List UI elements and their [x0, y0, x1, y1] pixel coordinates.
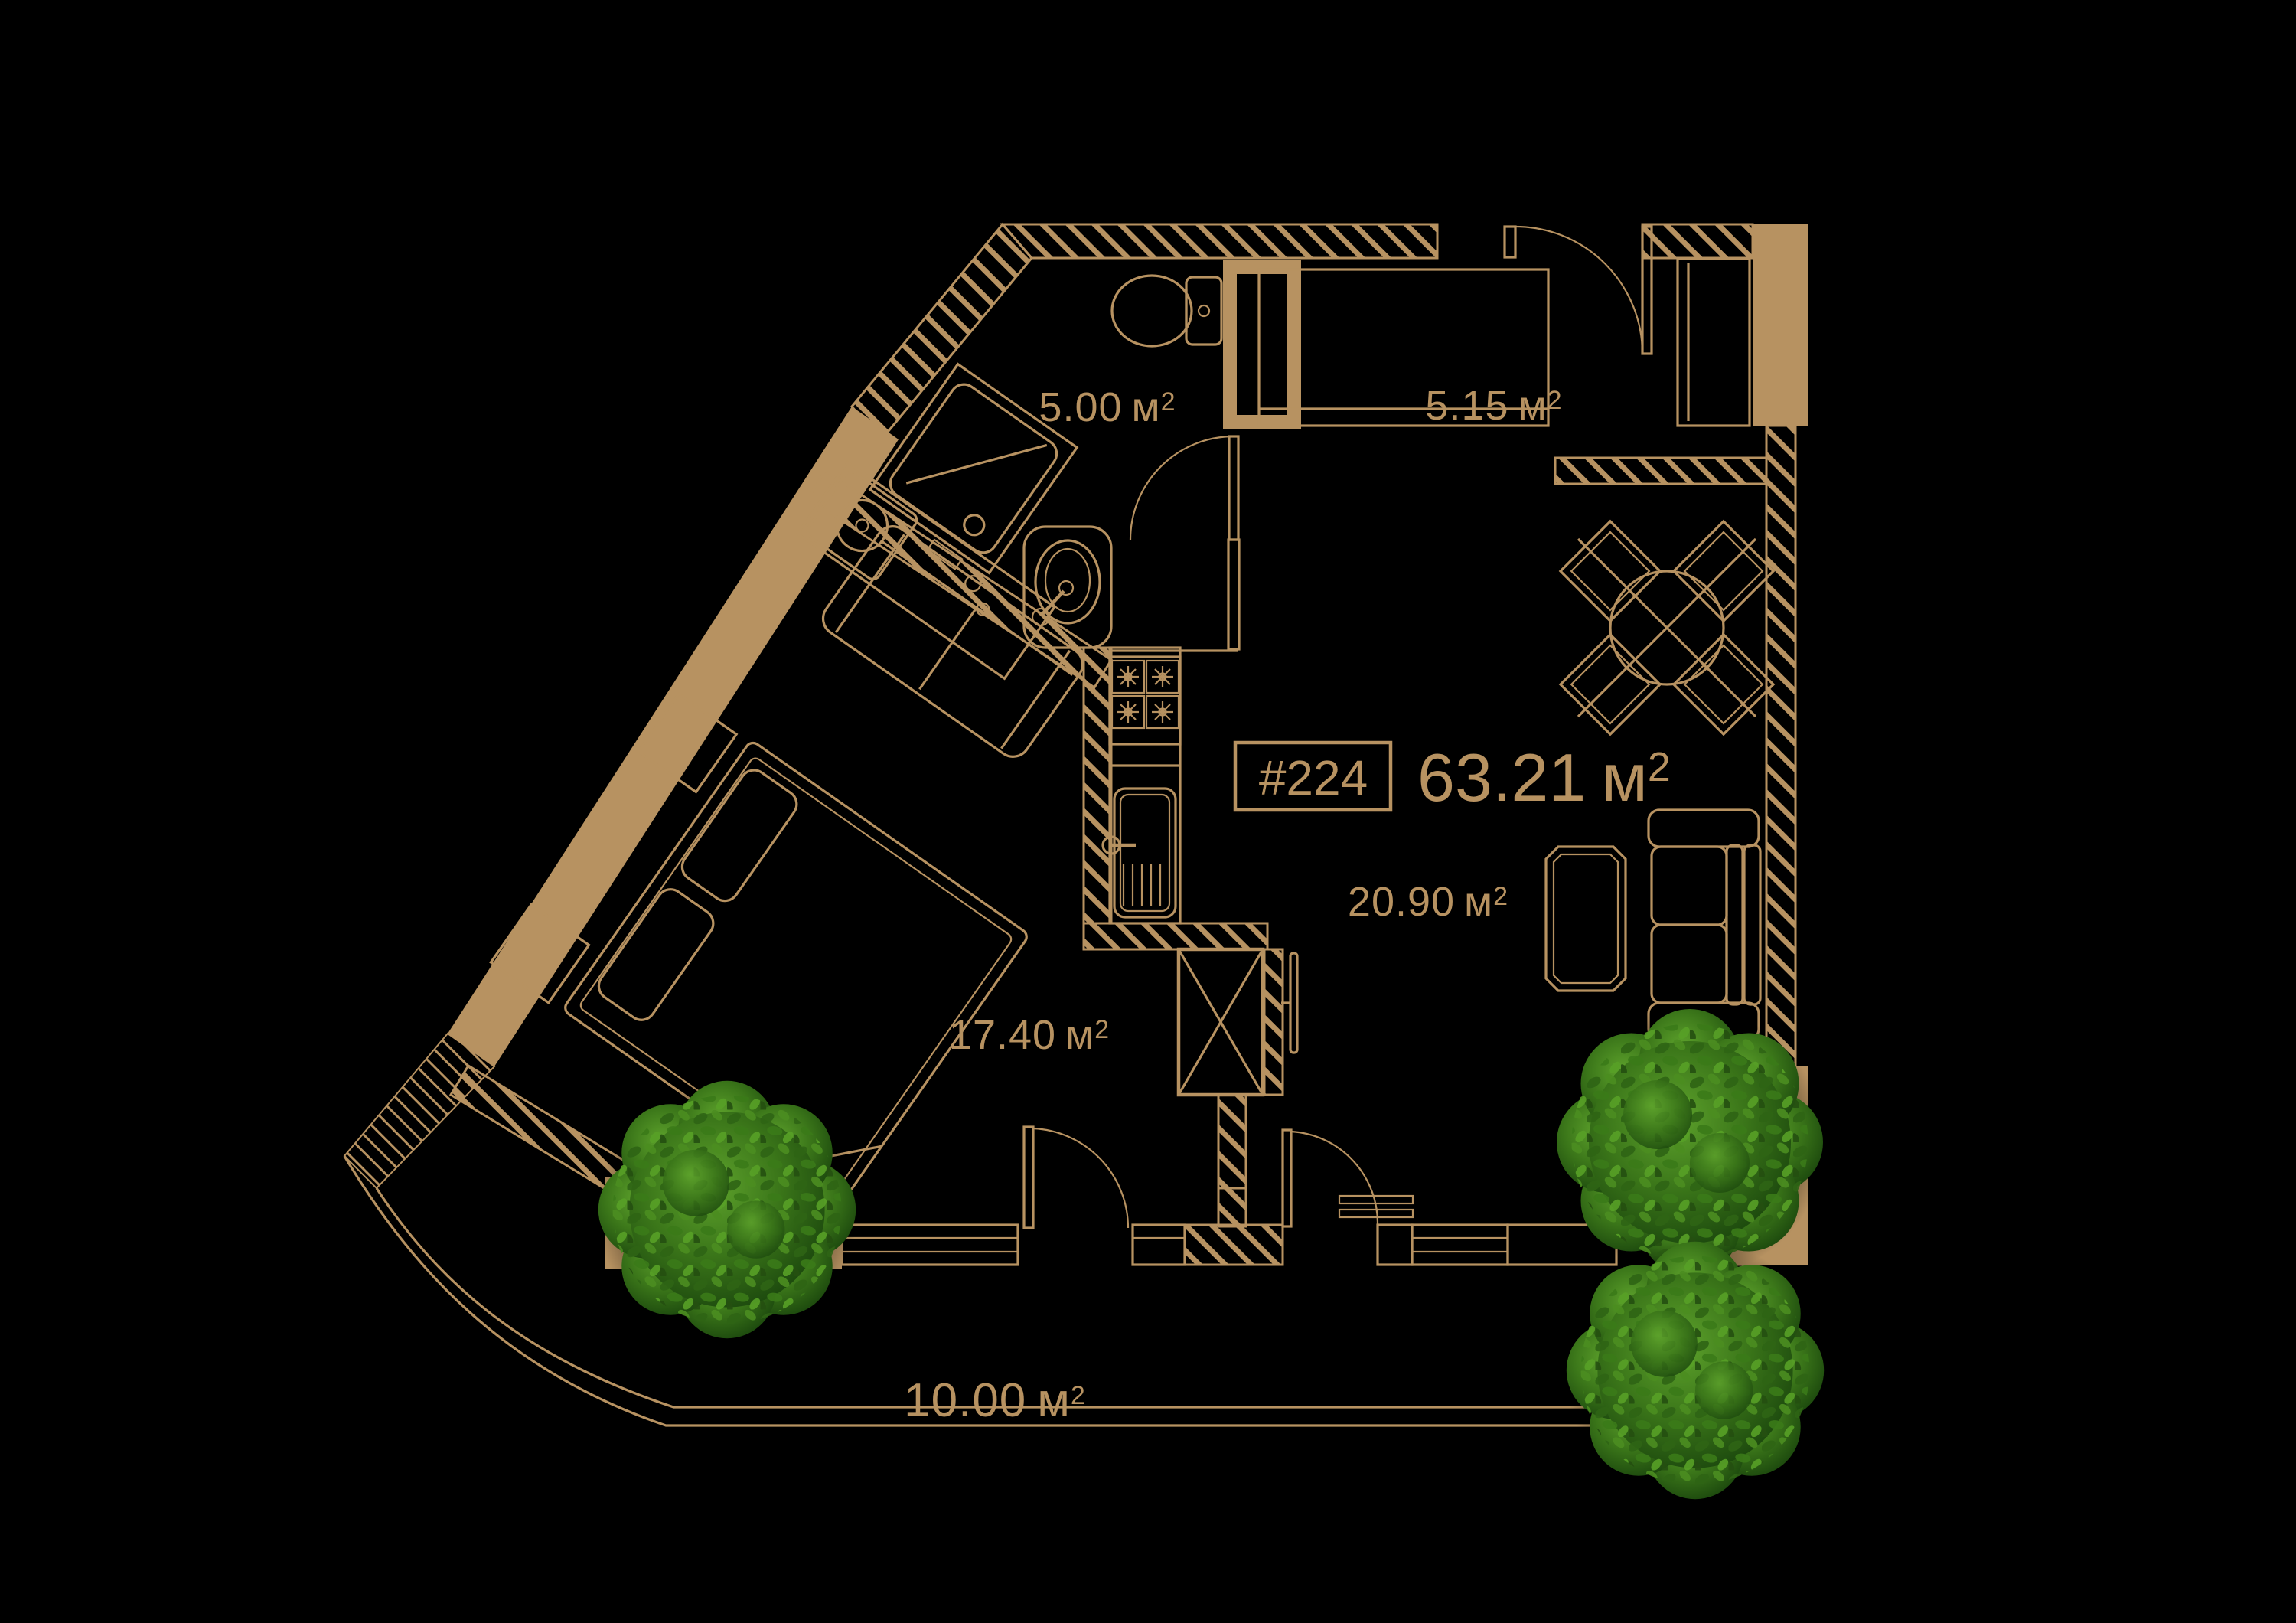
bathroom-area-label: 5.00м2	[1039, 384, 1176, 430]
bedroom-terrace-door-icon	[1024, 1127, 1128, 1228]
parapet-start	[344, 1034, 494, 1188]
dining-set	[1561, 521, 1773, 734]
partition-hallway-living	[1555, 458, 1766, 484]
duct-shaft-icon	[1230, 267, 1294, 422]
tree-icon	[596, 1079, 858, 1341]
wall-bottom	[842, 1188, 1616, 1265]
pillow-icon	[677, 765, 802, 906]
total-area-label: 63.21м2	[1417, 740, 1671, 815]
closet-icon	[1678, 259, 1750, 426]
pillow-icon	[593, 884, 719, 1026]
sofa-icon	[1649, 810, 1760, 1040]
hallway-area-label: 5.15м2	[1425, 383, 1562, 429]
wall-bottom-hatch	[1185, 1225, 1283, 1265]
wall-kitchen-bottom	[1084, 923, 1267, 949]
kitchen-block	[1103, 648, 1180, 923]
wall-below-bathroom-door	[1228, 540, 1239, 649]
floor-plan-svg: #224 63.21м2 5.00м2 5.15м2 20.90м2 17.40…	[0, 0, 2296, 1623]
wall-top	[1003, 224, 1437, 258]
wall-kitchen-left	[1084, 648, 1111, 923]
wall-top-right-segment	[1642, 224, 1753, 258]
wall-stub-wardrobe-right	[1264, 949, 1283, 1095]
wall-right	[1766, 426, 1795, 1066]
floor-plan-page: #224 63.21м2 5.00м2 5.15м2 20.90м2 17.40…	[0, 0, 2296, 1623]
window-bedroom-terrace	[842, 1225, 1018, 1265]
entrance-door-icon	[1505, 227, 1652, 354]
wall-bottom-plain-1	[1378, 1225, 1412, 1265]
wall-stub-small	[1218, 1188, 1246, 1226]
tall-cabinet-icon	[1179, 949, 1263, 1095]
tree-icon	[1554, 1007, 1825, 1278]
tree-icon	[1564, 1239, 1826, 1501]
window-living-terrace	[1412, 1225, 1508, 1265]
terrace-area-label: 10.00м2	[904, 1374, 1086, 1427]
unit-number-label: #224	[1259, 750, 1368, 805]
stove-icon	[1110, 657, 1180, 744]
labels: #224 63.21м2 5.00м2 5.15м2 20.90м2 17.40…	[904, 383, 1671, 1427]
coffee-table-icon	[1546, 847, 1626, 991]
living-area-label: 20.90м2	[1348, 879, 1508, 925]
bedroom-area-label: 17.40м2	[949, 1012, 1110, 1058]
column-top-right	[1753, 224, 1808, 426]
window-small	[1133, 1225, 1185, 1265]
bathroom-door-icon	[1130, 436, 1238, 540]
living-terrace-door-icon	[1283, 1130, 1413, 1226]
toilet-icon	[1112, 276, 1221, 346]
kitchen-sink-icon	[1103, 789, 1176, 917]
